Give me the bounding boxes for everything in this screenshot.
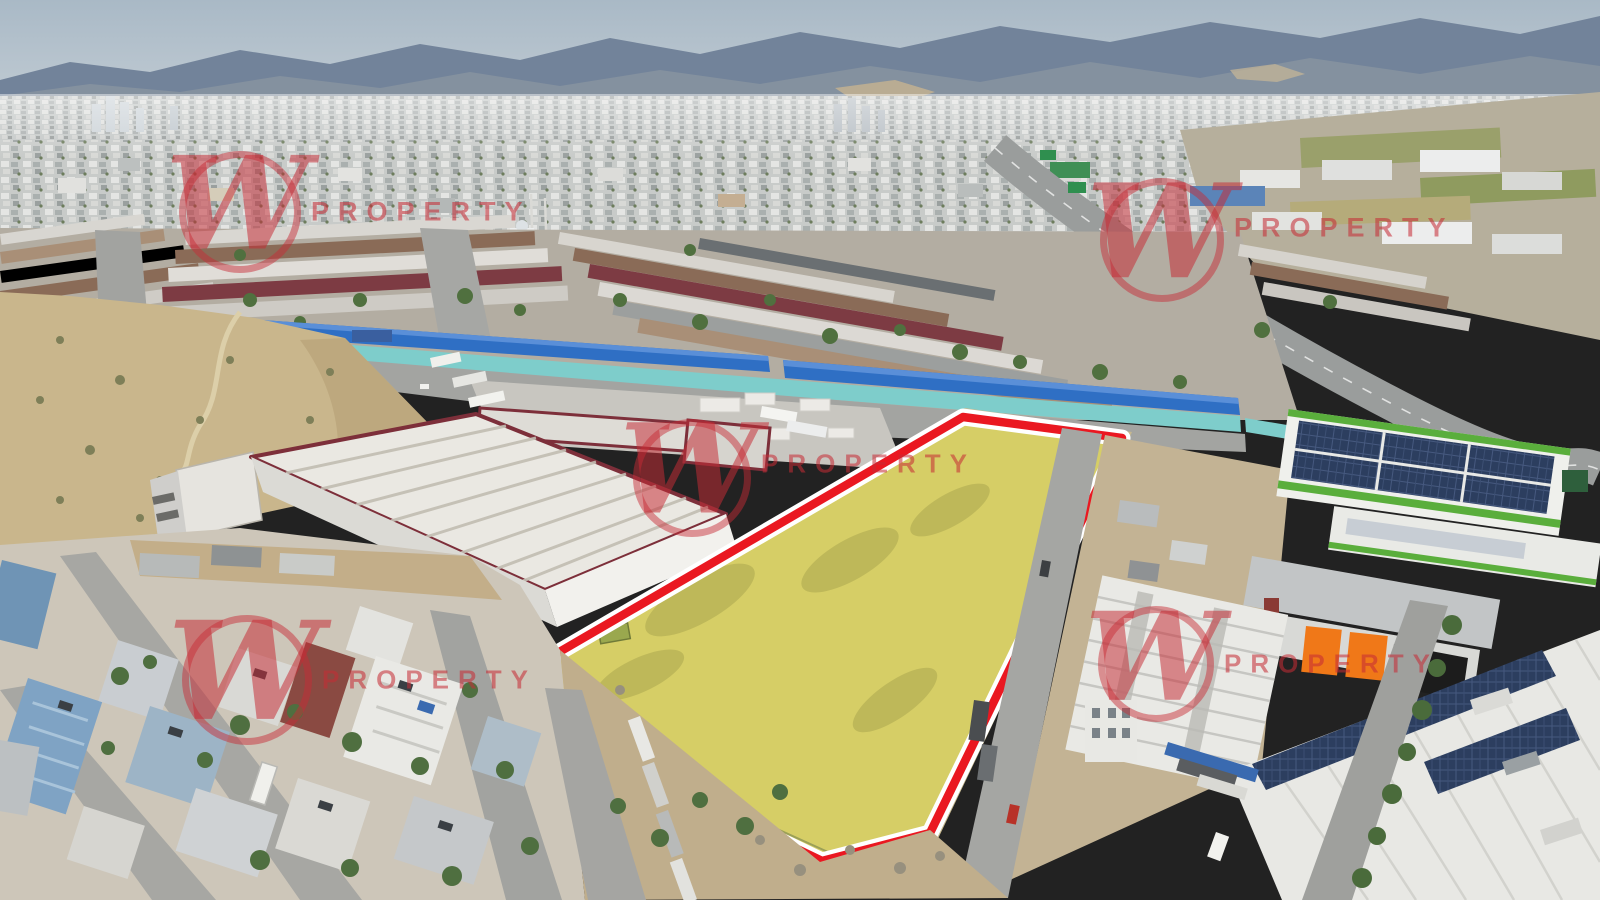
orange-door (1345, 632, 1387, 681)
highway-sign (1040, 150, 1056, 160)
right-district (958, 409, 1600, 900)
scene-svg (0, 0, 1600, 900)
white-house-3story (1085, 700, 1137, 762)
residential-area (0, 528, 585, 900)
blue-container (352, 330, 392, 342)
blue-roof-factory (1190, 186, 1265, 206)
highway-sign (1068, 182, 1086, 193)
aerial-photo: W PROPERTY W PROPERTY W PROPERTY W PROPE… (0, 0, 1600, 900)
orange-door (1301, 626, 1342, 676)
solar-roof-building-green (1276, 409, 1570, 536)
green-structure (1050, 162, 1090, 178)
green-shed (1562, 470, 1588, 492)
white-van (1207, 832, 1229, 861)
